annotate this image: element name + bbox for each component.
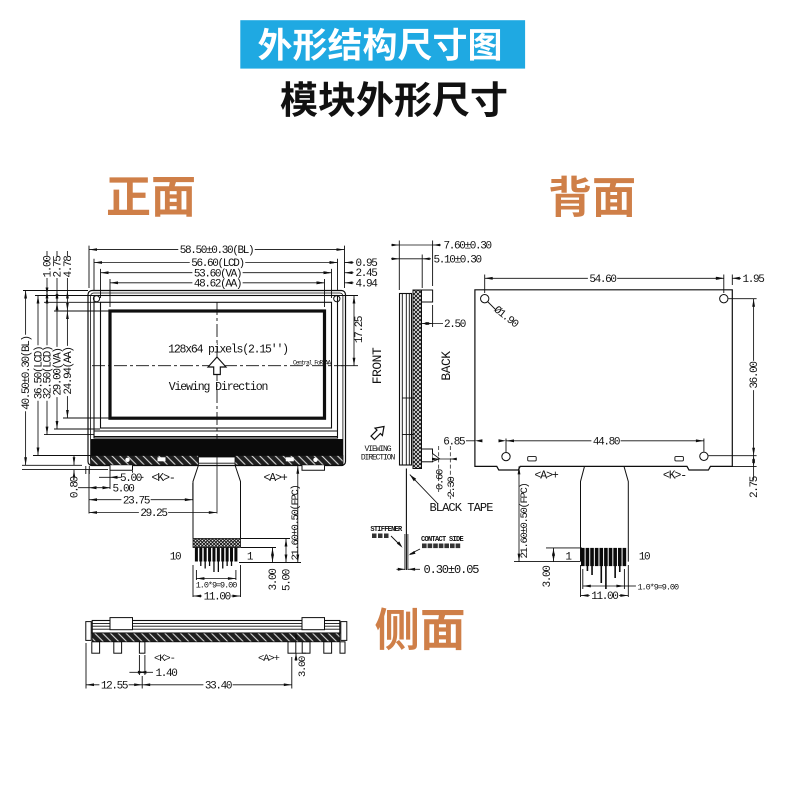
svg-text:<K>-: <K>-	[152, 472, 175, 485]
svg-text:<A>+: <A>+	[535, 470, 559, 483]
svg-text:Viewing Direction: Viewing Direction	[169, 381, 268, 394]
svg-text:12.55: 12.55	[101, 680, 128, 692]
svg-text:10: 10	[170, 552, 181, 564]
svg-text:36.00: 36.00	[749, 362, 761, 389]
svg-text:10: 10	[639, 552, 650, 564]
svg-text:54.60: 54.60	[589, 274, 616, 286]
svg-text:1.0*9=9.00: 1.0*9=9.00	[196, 581, 237, 591]
svg-text:<K>-: <K>-	[154, 653, 175, 665]
svg-text:0.30±0.05: 0.30±0.05	[424, 563, 480, 577]
svg-text:1.0*9=9.00: 1.0*9=9.00	[638, 582, 679, 592]
svg-text:5.00: 5.00	[282, 569, 294, 591]
svg-text:5.00: 5.00	[112, 483, 134, 495]
svg-text:2.30: 2.30	[446, 477, 458, 498]
svg-text:Central FoR AA: Central FoR AA	[293, 360, 331, 367]
svg-text:1.40: 1.40	[156, 668, 178, 680]
svg-text:58.50±0.30(BL): 58.50±0.30(BL)	[180, 245, 254, 257]
svg-text:FRONT: FRONT	[370, 347, 385, 384]
svg-text:7.60±0.30: 7.60±0.30	[444, 241, 492, 253]
svg-text:4.78: 4.78	[63, 256, 75, 278]
svg-text:DIRECTION: DIRECTION	[361, 454, 396, 463]
svg-text:29.25: 29.25	[140, 508, 167, 520]
svg-text:21.60±0.50(FPC): 21.60±0.50(FPC)	[519, 483, 531, 558]
svg-text:1.95: 1.95	[743, 274, 765, 286]
svg-text:BLACK TAPE: BLACK TAPE	[430, 501, 494, 515]
svg-text:5.10±0.30: 5.10±0.30	[434, 254, 482, 266]
svg-text:21.60±0.50(FPC): 21.60±0.50(FPC)	[290, 485, 302, 560]
svg-text:<A>+: <A>+	[264, 472, 288, 485]
svg-text:3.00: 3.00	[297, 656, 309, 677]
svg-text:48.62(AA): 48.62(AA)	[194, 278, 241, 290]
svg-text:2.50: 2.50	[444, 319, 466, 331]
svg-text:33.40: 33.40	[205, 680, 232, 692]
svg-text:<A>+: <A>+	[258, 653, 280, 665]
svg-text:STIFFENER: STIFFENER	[370, 526, 403, 534]
svg-text:3.00: 3.00	[268, 569, 280, 591]
svg-text:6.85: 6.85	[443, 436, 465, 448]
svg-text:CONTACT SIDE: CONTACT SIDE	[421, 536, 464, 544]
svg-text:0.80: 0.80	[70, 476, 82, 498]
svg-text:17.25: 17.25	[354, 316, 366, 343]
svg-text:BACK: BACK	[439, 351, 454, 381]
svg-text:11.00: 11.00	[591, 591, 618, 603]
svg-text:23.75: 23.75	[123, 495, 150, 507]
svg-text:128x64 pixels(2.15''): 128x64 pixels(2.15'')	[168, 344, 288, 357]
svg-text:24.94(AA): 24.94(AA)	[63, 347, 75, 394]
svg-text:2.75: 2.75	[749, 476, 761, 498]
svg-text:0.60: 0.60	[434, 469, 446, 490]
svg-text:11.00: 11.00	[204, 592, 231, 604]
svg-text:3.00: 3.00	[542, 566, 554, 588]
svg-text:44.80: 44.80	[593, 436, 620, 448]
svg-text:<K>-: <K>-	[663, 470, 686, 483]
svg-text:4.94: 4.94	[356, 278, 379, 290]
svg-text:40.50±0.30(BL): 40.50±0.30(BL)	[21, 336, 33, 410]
